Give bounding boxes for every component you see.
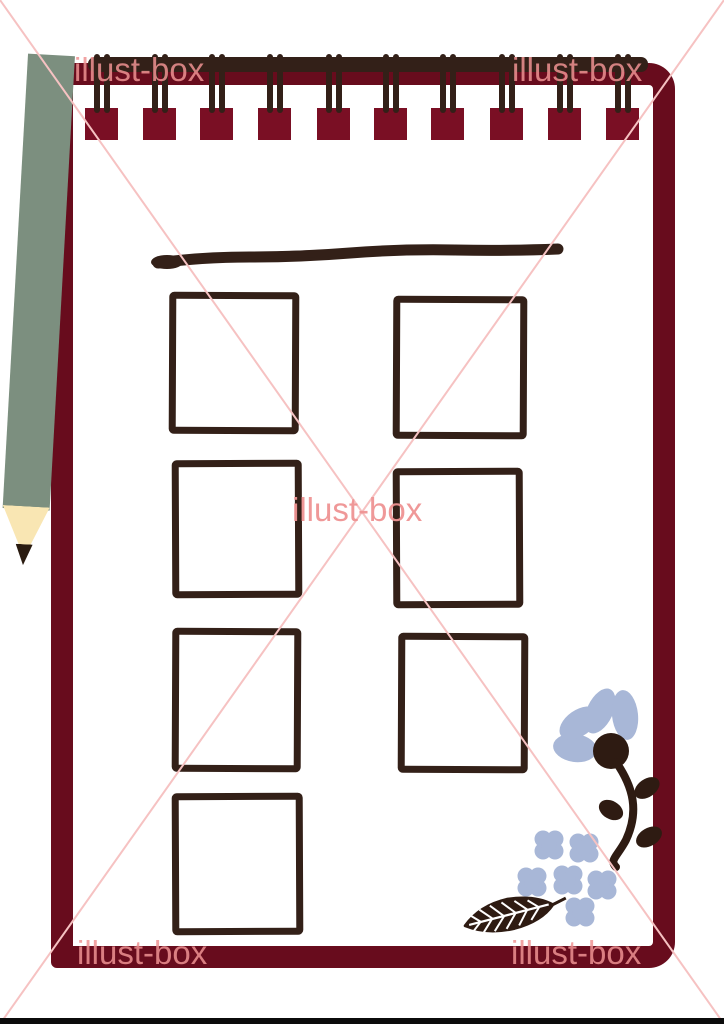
binding-ring-prong <box>219 54 225 113</box>
placeholder-frame <box>172 628 302 773</box>
binding-ring-prong <box>393 54 399 113</box>
binding-tab <box>317 108 350 140</box>
binding-ring-prong <box>277 54 283 113</box>
binding-tab <box>143 108 176 140</box>
pencil-lead-tip <box>14 544 32 566</box>
binding-tab <box>85 108 118 140</box>
placeholder-frame <box>393 468 524 609</box>
binding-tab <box>548 108 581 140</box>
pencil-wood-tip <box>0 505 49 550</box>
watermark-text-bottom-right: illust-box <box>511 936 641 969</box>
stock-illustration-notepad: illust-box illust-box illust-box illust-… <box>0 0 724 1024</box>
watermark-text-center: illust-box <box>292 493 422 526</box>
binding-ring-prong <box>383 54 389 113</box>
binding-tab <box>431 108 464 140</box>
binding-ring-prong <box>336 54 342 113</box>
binding-tab <box>490 108 523 140</box>
binding-ring-prong <box>326 54 332 113</box>
watermark-text-top-left: illust-box <box>74 53 204 86</box>
letterbox-bar <box>0 1018 724 1024</box>
binding-tab <box>200 108 233 140</box>
placeholder-frame <box>393 296 528 440</box>
placeholder-frame <box>172 460 303 599</box>
binding-ring-prong <box>267 54 273 113</box>
binding-tab <box>606 108 639 140</box>
binding-ring-prong <box>450 54 456 113</box>
placeholder-frame <box>398 633 529 774</box>
watermark-text-top-right: illust-box <box>512 53 642 86</box>
binding-tab <box>258 108 291 140</box>
binding-ring-prong <box>440 54 446 113</box>
placeholder-frame <box>169 292 300 435</box>
watermark-text-bottom-left: illust-box <box>77 936 207 969</box>
binding-tab <box>374 108 407 140</box>
placeholder-frame <box>172 793 304 936</box>
binding-ring-prong <box>209 54 215 113</box>
binding-ring-prong <box>499 54 505 113</box>
